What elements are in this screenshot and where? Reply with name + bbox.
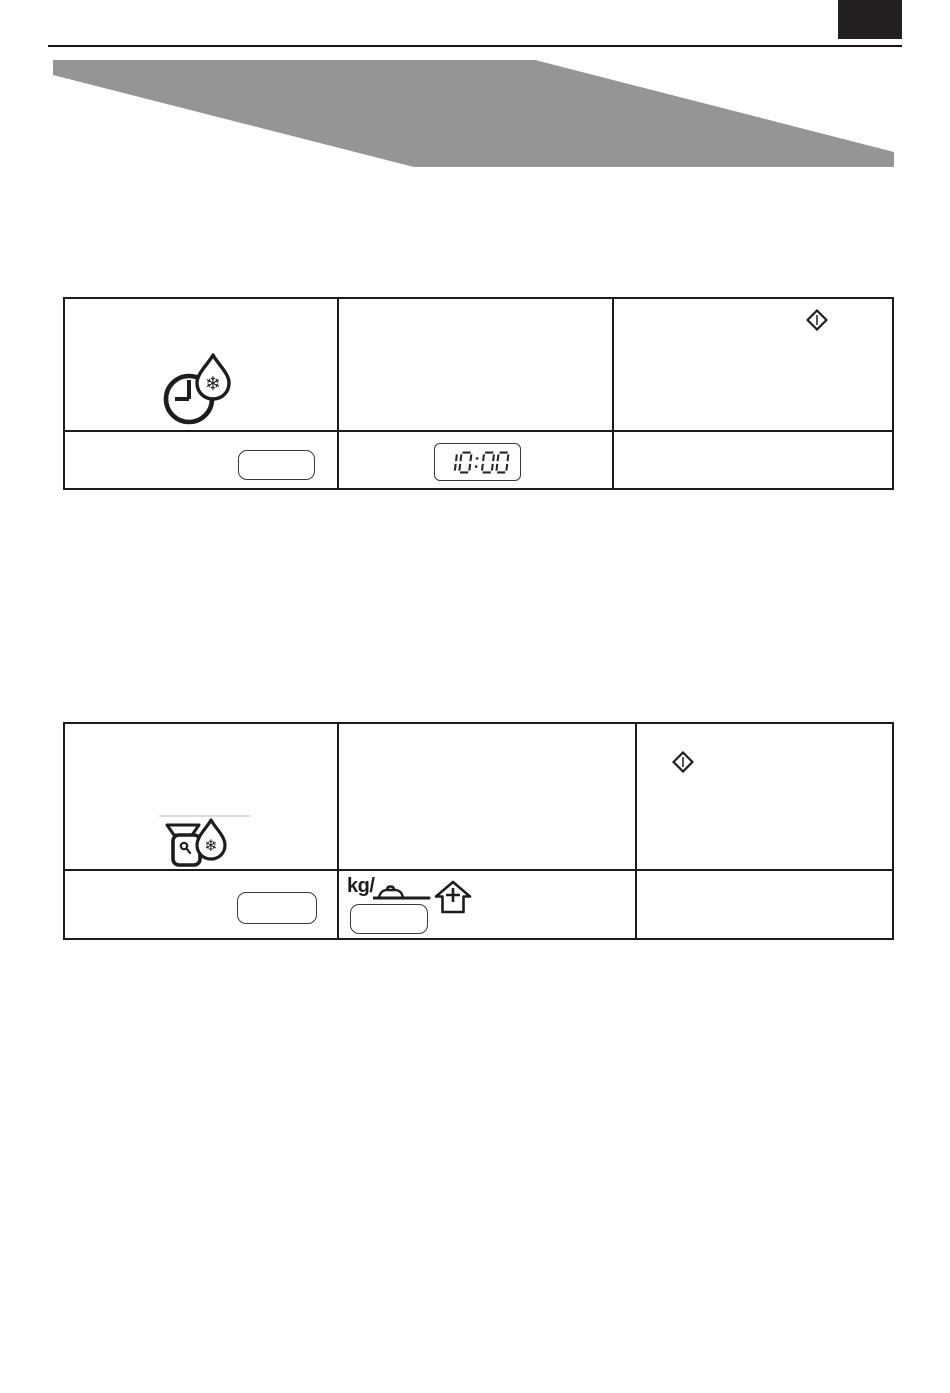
weight-defrost-cell-press [65,871,339,938]
dish-icon [373,882,431,902]
kg-per-dish-label: kg/ [347,876,374,896]
weight-defrost-cell-step1: ❄ [65,724,339,871]
time-display [434,443,521,481]
weight-defrost-cell-step2 [339,724,637,871]
time-defrost-cell-start [614,432,892,488]
weight-defrost-steps-table: ❄ kg/ [63,722,894,940]
weight-defrost-cell-start [637,871,892,938]
time-defrost-steps-table: ❄ [63,297,894,490]
time-defrost-icon: ❄ [163,349,235,429]
time-defrost-cell-step3 [614,299,892,432]
time-defrost-cell-step1: ❄ [65,299,339,432]
start-diamond-icon [672,751,694,773]
weight-defrost-icon: ❄ [164,817,228,871]
manual-page: { "document": { "kind": "appliance-manua… [0,0,950,1393]
up-plus-arrow-icon [434,880,472,914]
banner-swoosh [53,60,894,167]
weight-select-button [350,904,428,934]
time-defrost-cell-press [65,432,339,488]
header-rule [48,45,902,47]
time-defrost-cell-display [339,432,614,488]
weight-defrost-cell-weight-entry: kg/ [339,871,637,938]
snowflake-glyph: ❄ [205,373,221,395]
defrost-mode-button [237,892,317,924]
page-corner-tab [838,0,902,39]
weight-defrost-cell-step3 [637,724,892,871]
time-defrost-cell-step2 [339,299,614,432]
snowflake-glyph: ❄ [204,836,217,855]
seven-segment-readout [443,451,512,474]
defrost-mode-button [238,450,315,480]
start-diamond-icon [806,309,828,331]
